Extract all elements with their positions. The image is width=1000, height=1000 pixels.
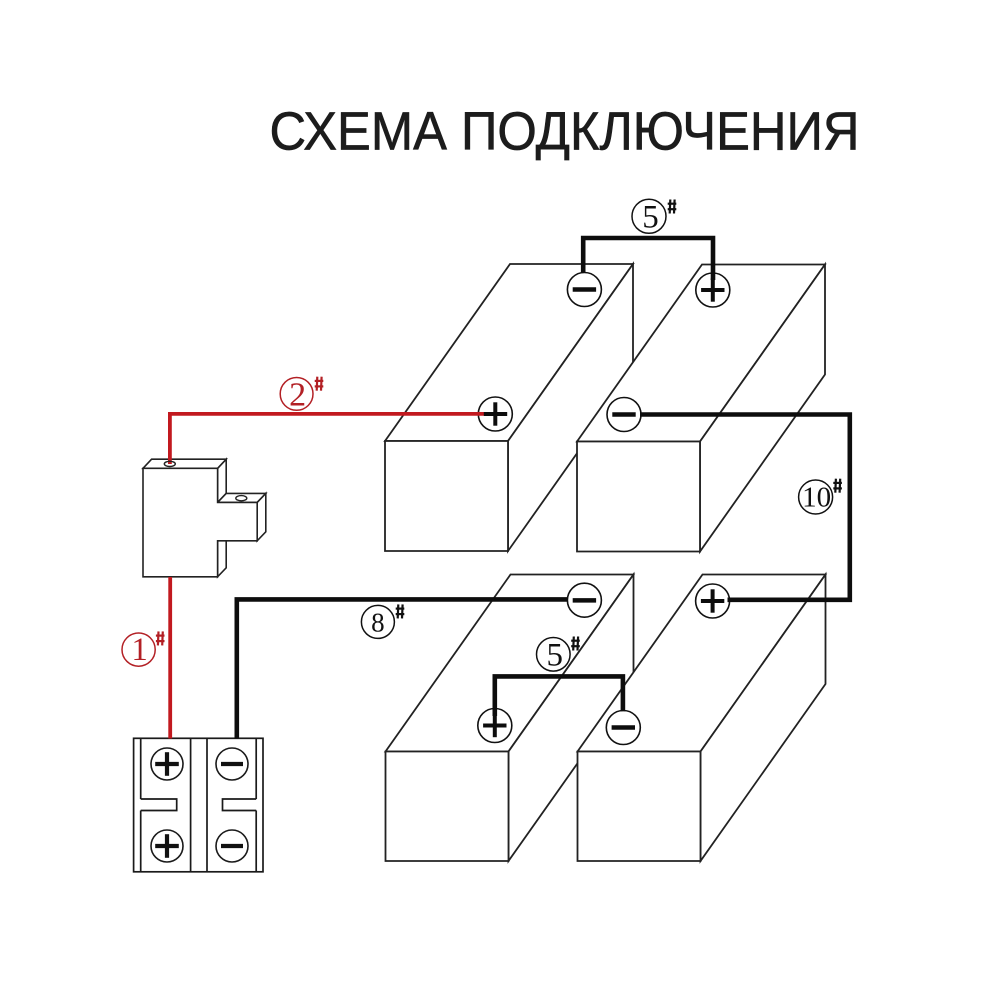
- svg-text:1: 1: [131, 632, 147, 668]
- svg-text:5: 5: [642, 200, 659, 236]
- svg-text:2: 2: [289, 377, 306, 414]
- svg-text:5: 5: [547, 638, 564, 674]
- svg-text:8: 8: [371, 608, 385, 638]
- svg-text:10: 10: [802, 482, 831, 514]
- svg-text:СХЕМА ПОДКЛЮЧЕНИЯ: СХЕМА ПОДКЛЮЧЕНИЯ: [270, 103, 860, 162]
